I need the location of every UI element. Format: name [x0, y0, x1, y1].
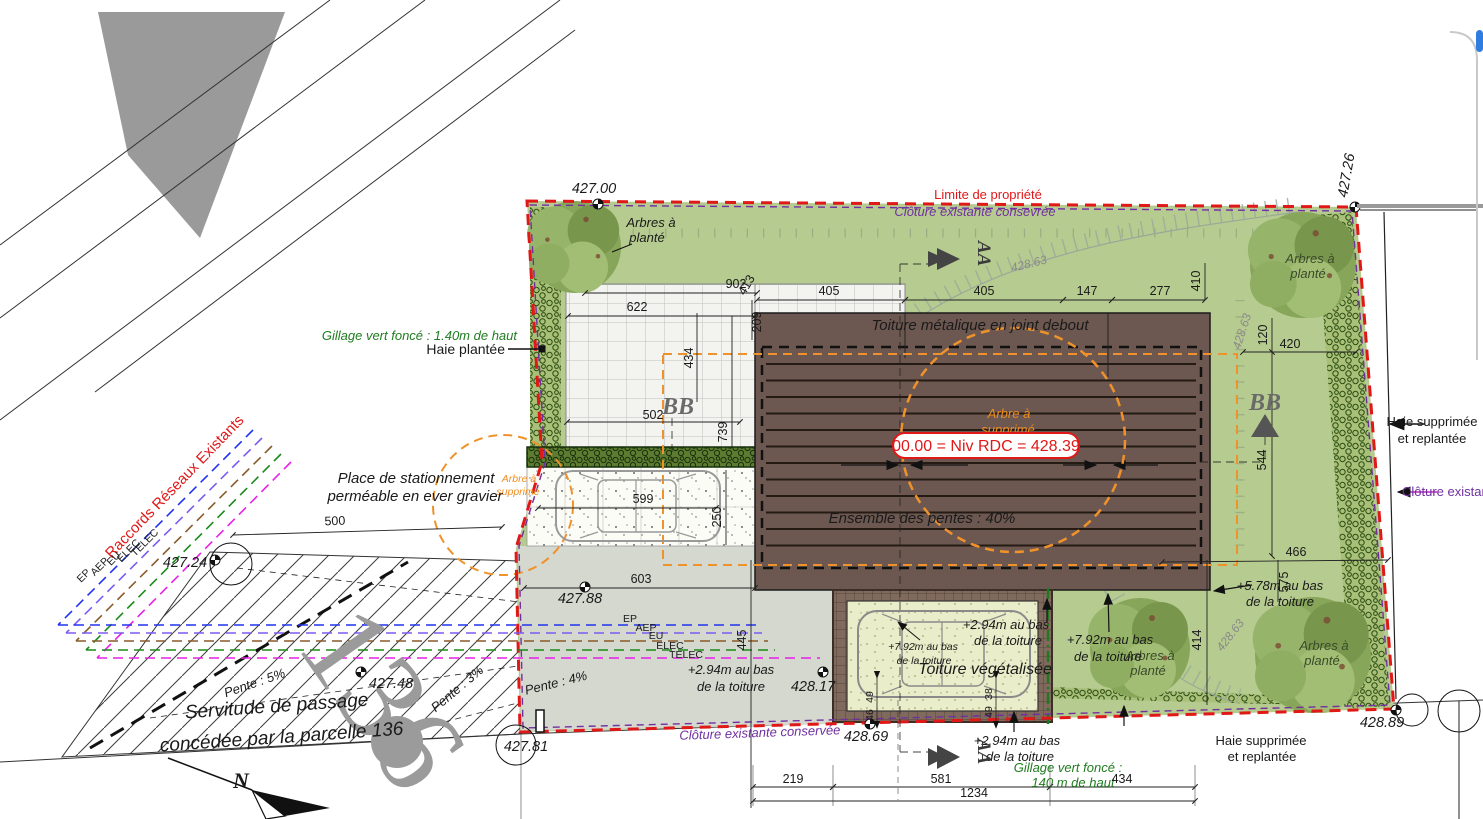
- label-arbres-a-4: Arbres à: [1298, 638, 1348, 653]
- dim-420: 420: [1280, 337, 1301, 351]
- dim-46: 46: [864, 709, 876, 721]
- label-haie-supprimee-b1: Haie supprimée: [1215, 733, 1306, 748]
- section-bb-right: BB: [1248, 390, 1281, 416]
- level-427-48: 427.48: [369, 676, 413, 692]
- dim-434: 434: [682, 348, 696, 369]
- label-cloture-existante: Clôture existante: [1402, 484, 1483, 499]
- label-arbres-a-1: Arbres à: [625, 215, 675, 230]
- level-428-17: 428.17: [791, 679, 836, 695]
- label-arbres-a-2: Arbres à: [1284, 251, 1334, 266]
- label-h294-a1: +2.94m au bas: [688, 662, 775, 677]
- label-raccords: Raccords Réseaux Existants: [102, 412, 247, 562]
- dim-405-a: 405: [819, 284, 840, 298]
- level-427-88: 427.88: [558, 591, 602, 607]
- dim-49-a: 49: [864, 691, 876, 703]
- dim-445: 445: [735, 630, 749, 651]
- label-niveau-rdc: 00.00 = Niv RDC = 428.39: [892, 438, 1080, 455]
- label-ensemble-pentes: Ensemble des pentes : 40%: [829, 510, 1016, 527]
- dim-544: 544: [1255, 450, 1269, 471]
- label-supprime-2: supprimé: [496, 486, 539, 498]
- label-toiture-metalique: Toiture métalique en joint debout: [871, 317, 1089, 334]
- dim-219: 219: [783, 772, 804, 786]
- label-h578-2: de la toiture: [1246, 594, 1314, 609]
- dim-434-b: 434: [1112, 772, 1133, 786]
- label-plante-3: planté: [1129, 663, 1165, 678]
- gate-symbol: [536, 710, 544, 732]
- label-plante-1: planté: [628, 230, 664, 245]
- north-arrow-icon: [168, 758, 330, 819]
- label-cloture-top: Clôture existante consevrée: [894, 204, 1055, 219]
- label-limite-propriete: Limite de propriété: [934, 187, 1042, 202]
- level-427-81: 427.81: [504, 739, 548, 755]
- dim-581: 581: [931, 772, 952, 786]
- hedge-strip: [527, 447, 757, 467]
- label-haie-plantee: Haie plantée: [426, 341, 505, 357]
- north-label: N: [232, 768, 250, 793]
- level-427-24: 427.24: [163, 555, 207, 571]
- label-gillage-2: 140 m de haut: [1031, 775, 1116, 790]
- section-bb-left: BB: [661, 394, 694, 420]
- dim-209: 209: [750, 312, 764, 333]
- section-aa-bottom: AA: [973, 738, 994, 764]
- label-telec: TELEC: [669, 649, 703, 661]
- dim-739: 739: [716, 422, 730, 443]
- label-place-2: perméable en ever gravier: [326, 488, 503, 505]
- section-aa-top: AA: [973, 240, 994, 266]
- label-arbre-a-2: Arbre à: [501, 473, 537, 485]
- level-427-00: 427.00: [572, 181, 616, 197]
- label-h792-a2: de la toiture: [897, 655, 952, 667]
- dim-405-b: 405: [974, 284, 995, 298]
- label-haie-supprimee-b2: et replantée: [1228, 749, 1297, 764]
- dim-147: 147: [1077, 284, 1098, 298]
- label-h792-a1: +7.92m au bas: [888, 641, 959, 653]
- label-place-1: Place de stationnement: [338, 470, 496, 487]
- label-gillage-1: Gillage vert foncé :: [1014, 760, 1123, 775]
- dim-414: 414: [1190, 630, 1204, 651]
- dim-250: 250: [710, 507, 724, 528]
- street-area: [0, 0, 575, 420]
- road-band: [98, 12, 285, 238]
- rdc-level-box: 00.00 = Niv RDC = 428.39: [892, 433, 1080, 458]
- dim-500: 500: [324, 514, 345, 529]
- dim-622: 622: [627, 300, 648, 314]
- label-haie-supprimee-r2: et replantée: [1398, 431, 1467, 446]
- label-h792-b1: +7.92m au bas: [1067, 632, 1154, 647]
- level-428-89: 428.89: [1360, 715, 1404, 731]
- dim-1234: 1234: [960, 786, 988, 800]
- scrollbar-thumb[interactable]: [1476, 30, 1483, 52]
- label-h294-b1: +2.94m au bas: [963, 617, 1050, 632]
- label-h294-b2: de la toiture: [974, 633, 1042, 648]
- dim-410: 410: [1189, 271, 1203, 292]
- tree-icon: [527, 201, 621, 293]
- dim-502: 502: [643, 408, 664, 422]
- label-h792-b2: de la toiture: [1074, 649, 1142, 664]
- dim-120: 120: [1256, 325, 1270, 346]
- level-427-26: 427.26: [1335, 151, 1359, 198]
- label-plante-4: planté: [1303, 653, 1339, 668]
- label-h294-a2: de la toiture: [697, 679, 765, 694]
- dim-38: 38: [983, 688, 995, 700]
- dim-466: 466: [1286, 545, 1307, 559]
- dim-575: 575: [1277, 572, 1291, 593]
- level-428-69: 428.69: [844, 729, 888, 745]
- label-plante-2: planté: [1289, 266, 1325, 281]
- site-plan-canvas: 136 Limite de propriété Clôture existant…: [0, 0, 1483, 819]
- dim-277: 277: [1150, 284, 1171, 298]
- label-arbre-a-1: Arbre à: [987, 406, 1031, 421]
- dim-599: 599: [633, 492, 654, 506]
- dim-49-b: 49: [983, 706, 995, 718]
- label-haie-supprimee-r1: Haie supprimée: [1386, 414, 1477, 429]
- dim-603: 603: [631, 572, 652, 586]
